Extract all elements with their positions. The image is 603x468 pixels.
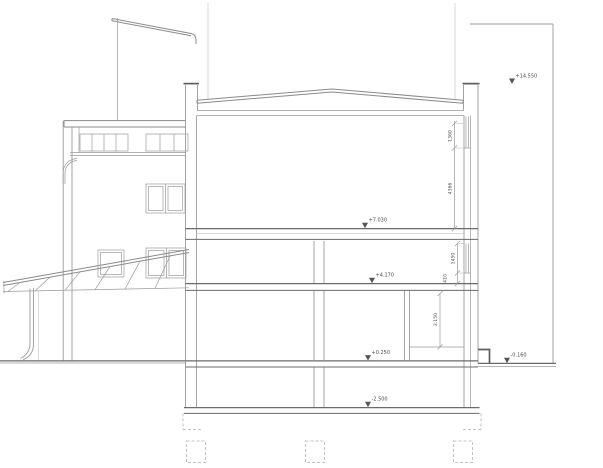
level-triangle-icon [362, 223, 368, 229]
architectural-section-drawing: 1360 4366 1450 410 2.150 +14.550 +7.030 … [0, 0, 603, 468]
column-lines [314, 241, 324, 407]
dimension-lines: 1360 4366 1450 410 2.150 [433, 121, 464, 350]
section-drawing-svg: 1360 4366 1450 410 2.150 +14.550 +7.030 … [0, 0, 603, 468]
upper-floor-window [464, 244, 471, 274]
clerestory-windows [70, 134, 188, 155]
level-triangle-icon [365, 402, 371, 408]
level-value: +7.030 [369, 218, 388, 224]
excavation-right [463, 413, 481, 429]
site-boundary [208, 3, 553, 363]
elevation-marker-ground-floor: +0.250 [365, 350, 390, 361]
clerestory-group-2 [146, 134, 188, 151]
annex-parapet [64, 121, 186, 127]
gable-roof-plane [197, 89, 463, 103]
footing-pad-center [306, 441, 325, 463]
elevation-marker-hall-floor: +7.030 [362, 218, 387, 229]
footing-pad-right [454, 441, 473, 463]
clerestory-group-2-mullions [160, 134, 174, 151]
dim-witness [456, 124, 464, 149]
canopy-post [21, 288, 39, 360]
parapet-left [186, 85, 198, 111]
dimension-room-height: 2.150 [433, 291, 443, 350]
level-triangle-icon [504, 358, 510, 364]
post-curved-foot [21, 344, 34, 360]
clerestory-group-1-mullions [92, 134, 116, 151]
footing-pad-left [187, 441, 206, 463]
level-value: -0.160 [511, 353, 527, 359]
room-partition-wall [405, 291, 410, 360]
parapet-right [464, 85, 479, 111]
annex-window-upper [146, 184, 185, 213]
main-building [183, 84, 556, 463]
level-triangle-icon [369, 278, 375, 284]
annex-wall [63, 121, 72, 361]
elevation-marker-boundary: +14.550 [509, 74, 537, 85]
level-triangle-icon [509, 79, 515, 85]
foundation [183, 413, 481, 462]
annex-window-right [146, 248, 186, 278]
elevation-markers: +14.550 +7.030 +4.170 +0.250 -2.500 -0.1… [362, 74, 537, 408]
boundary-envelope-line [470, 24, 553, 363]
clerestory-sill [70, 153, 186, 156]
downpipe-bend [63, 159, 77, 185]
dim-value-hall-wall: 4366 [448, 183, 454, 195]
central-column [314, 241, 324, 407]
level-value: -2.500 [372, 397, 388, 403]
window-frame [146, 248, 186, 278]
dim-value-clerestory: 1360 [448, 130, 454, 142]
grade-step [478, 350, 490, 364]
window-pane [149, 187, 164, 211]
annex-building [0, 18, 196, 363]
elevation-marker-grade: -0.160 [504, 353, 527, 364]
level-value: +14.550 [516, 74, 538, 80]
elevation-marker-upper-floor: +4.170 [369, 273, 394, 284]
level-value: +0.250 [372, 350, 391, 356]
roof-and-parapets [184, 84, 480, 116]
hall-window [464, 117, 471, 149]
dimension-upper-window: 1450 410 [443, 241, 465, 286]
window-pane [168, 187, 183, 211]
dimension-hall-height: 1360 4366 [448, 121, 465, 231]
elevation-marker-basement: -2.500 [365, 397, 388, 408]
right-wall-windows [464, 117, 471, 274]
post-lines [30, 288, 34, 344]
dim-witness [459, 244, 464, 274]
hall-ceiling-band [197, 111, 464, 116]
dim-value-window: 1450 [451, 253, 457, 265]
high-canopy-roof [112, 19, 196, 45]
level-triangle-icon [365, 355, 371, 361]
canopy-top-chord [3, 250, 189, 286]
level-value: +4.170 [376, 273, 395, 279]
dim-value-sill: 410 [443, 274, 449, 283]
dim-value-room: 2.150 [433, 313, 439, 326]
excavation-left [183, 413, 201, 429]
canopy-truss [3, 250, 189, 294]
